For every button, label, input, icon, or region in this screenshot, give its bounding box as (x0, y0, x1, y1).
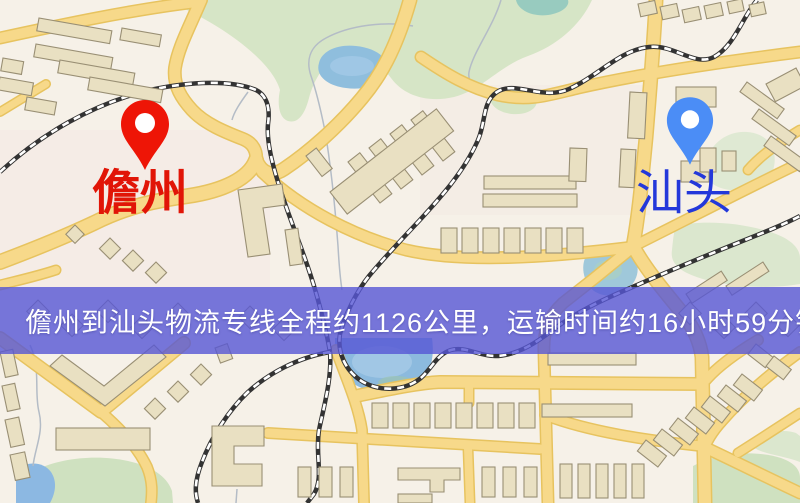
destination-pin-icon (667, 97, 713, 164)
map-canvas (0, 0, 800, 503)
route-info-banner: 儋州到汕头物流专线全程约1126公里，运输时间约16小时59分钟. (0, 287, 800, 354)
origin-pin[interactable] (118, 98, 172, 172)
origin-label: 儋州 (92, 170, 188, 218)
origin-pin-icon (121, 100, 169, 170)
destination-label: 汕头 (636, 170, 732, 218)
route-info-text: 儋州到汕头物流专线全程约1126公里，运输时间约16小时59分钟. (25, 301, 800, 340)
destination-pin[interactable] (664, 95, 716, 167)
map-screenshot: 儋州 汕头 儋州到汕头物流专线全程约1126公里，运输时间约16小时59分钟. (0, 0, 800, 503)
